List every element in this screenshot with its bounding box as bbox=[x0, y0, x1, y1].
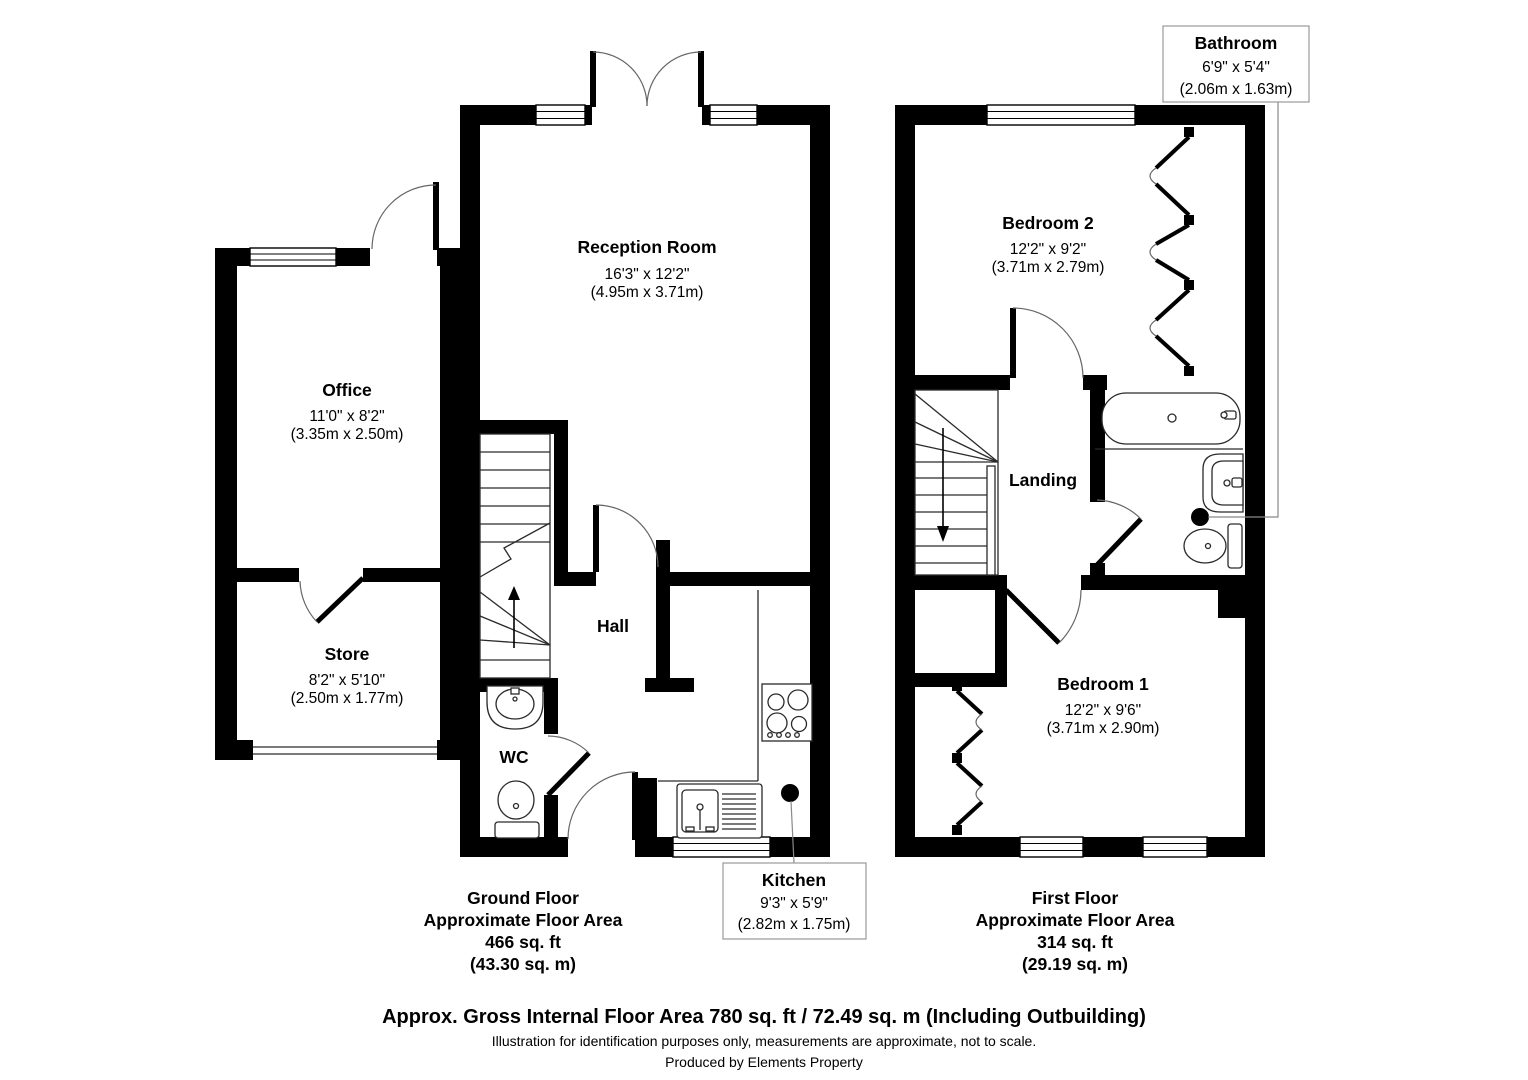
stairs-ground bbox=[480, 434, 550, 678]
room-size-m-office: (3.35m x 2.50m) bbox=[291, 426, 404, 443]
room-size-m-reception: (4.95m x 3.71m) bbox=[591, 284, 704, 301]
door-bathroom bbox=[1097, 500, 1141, 565]
french-doors-reception bbox=[590, 51, 704, 107]
room-label-reception: Reception Room bbox=[577, 237, 716, 257]
room-label-wc: WC bbox=[499, 747, 529, 767]
room-label-store: Store bbox=[325, 644, 370, 664]
first-floor-plan: Bathroom 6'9" x 5'4" (2.06m x 1.63m) Bed… bbox=[895, 26, 1309, 857]
wardrobe-bedroom2 bbox=[1150, 127, 1194, 376]
banister bbox=[987, 466, 995, 575]
front-door bbox=[568, 772, 638, 840]
first-title-floor: First Floor bbox=[1032, 888, 1119, 908]
first-title-area-ft: 314 sq. ft bbox=[1037, 932, 1113, 952]
room-size-ft-bathroom: 6'9" x 5'4" bbox=[1202, 59, 1270, 76]
ground-floor-plan: Reception Room 16'3" x 12'2" (4.95m x 3.… bbox=[215, 51, 866, 939]
window-bedroom1-left bbox=[1020, 837, 1083, 857]
room-size-m-bathroom: (2.06m x 1.63m) bbox=[1180, 81, 1293, 98]
ground-title-area-ft: 466 sq. ft bbox=[485, 932, 561, 952]
room-label-office: Office bbox=[322, 380, 372, 400]
window-reception-left bbox=[536, 105, 585, 125]
wc-toilet-icon bbox=[495, 781, 539, 838]
ground-title-area-m: (43.30 sq. m) bbox=[470, 954, 576, 974]
kitchen-sink-icon bbox=[677, 784, 762, 838]
window-kitchen bbox=[673, 837, 770, 857]
gross-area-text: Approx. Gross Internal Floor Area 780 sq… bbox=[382, 1006, 1146, 1028]
window-bedroom1-right bbox=[1143, 837, 1207, 857]
bathroom-basin-icon bbox=[1203, 454, 1243, 512]
ground-title-label: Approximate Floor Area bbox=[424, 910, 623, 930]
stairs-first bbox=[915, 390, 998, 575]
room-label-bedroom1: Bedroom 1 bbox=[1057, 674, 1149, 694]
floorplan-svg: Reception Room 16'3" x 12'2" (4.95m x 3.… bbox=[0, 0, 1528, 1080]
room-label-landing: Landing bbox=[1009, 470, 1077, 490]
first-title-label: Approximate Floor Area bbox=[976, 910, 1175, 930]
room-size-ft-bedroom1: 12'2" x 9'6" bbox=[1065, 702, 1141, 719]
first-title-area-m: (29.19 sq. m) bbox=[1022, 954, 1128, 974]
room-label-hall: Hall bbox=[597, 616, 629, 636]
ground-title-floor: Ground Floor bbox=[467, 888, 579, 908]
room-label-bedroom2: Bedroom 2 bbox=[1002, 213, 1094, 233]
credit-text: Produced by Elements Property bbox=[665, 1054, 863, 1070]
wc-basin-icon bbox=[487, 686, 543, 729]
door-office bbox=[372, 182, 439, 250]
room-label-kitchen: Kitchen bbox=[762, 870, 826, 890]
window-reception-right bbox=[710, 105, 757, 125]
room-size-ft-office: 11'0" x 8'2" bbox=[309, 408, 384, 425]
door-bedroom2 bbox=[1010, 308, 1083, 378]
room-size-m-bedroom2: (3.71m x 2.79m) bbox=[992, 259, 1105, 276]
floorplan-page: Reception Room 16'3" x 12'2" (4.95m x 3.… bbox=[0, 0, 1528, 1080]
kitchen-callout-dot bbox=[781, 784, 799, 802]
room-size-ft-store: 8'2" x 5'10" bbox=[309, 672, 385, 689]
room-size-ft-reception: 16'3" x 12'2" bbox=[604, 266, 689, 283]
window-bedroom2 bbox=[987, 105, 1135, 125]
disclaimer-text: Illustration for identification purposes… bbox=[492, 1033, 1036, 1049]
wardrobe-bedroom1 bbox=[952, 681, 982, 835]
door-store bbox=[300, 578, 363, 622]
bathroom-callout-dot bbox=[1191, 508, 1209, 526]
window-office bbox=[250, 248, 336, 266]
room-size-m-kitchen: (2.82m x 1.75m) bbox=[738, 916, 851, 933]
bath-icon bbox=[1095, 393, 1243, 449]
room-size-ft-bedroom2: 12'2" x 9'2" bbox=[1010, 241, 1086, 258]
room-size-ft-kitchen: 9'3" x 5'9" bbox=[760, 895, 828, 912]
room-size-m-bedroom1: (3.71m x 2.90m) bbox=[1047, 720, 1160, 737]
room-size-m-store: (2.50m x 1.77m) bbox=[291, 690, 404, 707]
room-label-bathroom: Bathroom bbox=[1195, 33, 1278, 53]
hob-icon bbox=[762, 684, 812, 741]
door-bedroom1 bbox=[1006, 590, 1081, 643]
bathroom-toilet-icon bbox=[1184, 524, 1242, 568]
door-wc bbox=[548, 736, 589, 795]
footer: Approx. Gross Internal Floor Area 780 sq… bbox=[382, 1006, 1146, 1070]
door-reception-hall bbox=[593, 505, 658, 572]
